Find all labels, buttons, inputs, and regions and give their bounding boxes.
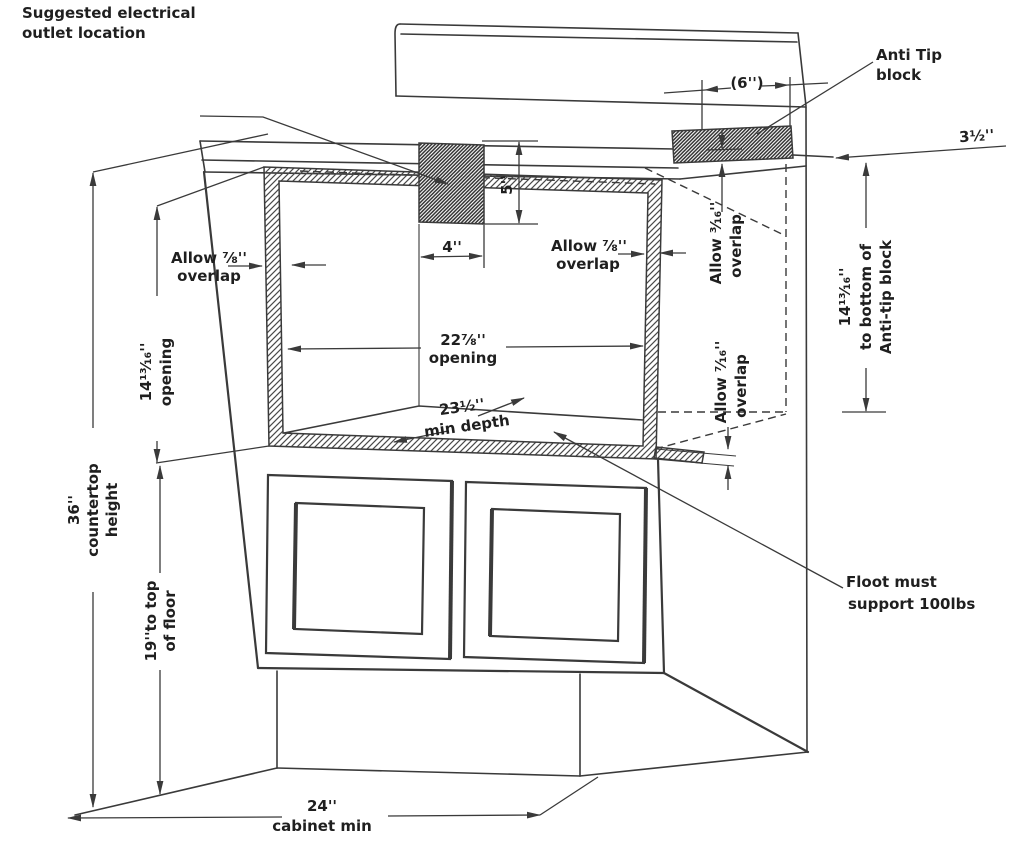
callout-floor-support: Floot must support 100lbs [554, 432, 975, 613]
label-suggested-outlet-1: Suggested electrical [22, 4, 196, 22]
label-cabinet-min-1: 24'' [307, 797, 337, 815]
dim-floor-height: 19''to top of floor [142, 466, 179, 794]
label-anti-tip-2: block [876, 66, 922, 84]
label-three-half: 3½'' [958, 126, 994, 146]
label-anti-tip-1: Anti Tip [876, 46, 942, 64]
label-allow-left-1: Allow ⅞'' [171, 249, 247, 267]
outlet-block [419, 143, 484, 224]
label-suggested-outlet-2: outlet location [22, 24, 146, 42]
label-opening-height-2: opening [157, 338, 175, 406]
countertop [200, 107, 833, 752]
label-allow-316-1: Allow ³⁄₁₆'' [707, 202, 725, 285]
label-allow-716-2: overlap [732, 354, 750, 418]
label-anti-tip-height-2: to bottom of [857, 243, 875, 350]
cabinet-doors [266, 475, 646, 663]
label-allow-716-1: Allow ⁷⁄₁₆'' [712, 341, 730, 424]
label-allow-right-1: Allow ⅞'' [551, 237, 627, 255]
label-dim-4in: 4'' [442, 238, 462, 256]
dim-anti-tip-height: 14¹³⁄₁₆'' to bottom of Anti-tip block [836, 163, 895, 412]
label-opening-height-1: 14¹³⁄₁₆'' [137, 343, 155, 402]
label-allow-right-2: overlap [556, 255, 620, 273]
anti-tip-block [672, 126, 793, 163]
label-floor-height-2: of floor [161, 590, 179, 652]
label-opening-width-word: opening [429, 349, 497, 367]
backsplash [395, 24, 806, 107]
label-allow-left-2: overlap [177, 267, 241, 285]
dim-opening-height: 14¹³⁄₁₆'' opening [137, 167, 269, 463]
callout-suggested-outlet: Suggested electrical outlet location [22, 4, 448, 184]
dim-cabinet-min: 24'' cabinet min [68, 777, 598, 835]
label-floor-height-1: 19''to top [142, 580, 160, 661]
label-floor-support-2: support 100lbs [848, 595, 975, 613]
label-allow-316-2: overlap [727, 214, 745, 278]
dim-min-depth: 23½'' min depth [394, 395, 524, 442]
label-anti-tip-height-3: Anti-tip block [877, 239, 895, 354]
installation-diagram: 5'' 4'' 22⅞'' opening Allow ⅞'' overlap … [0, 0, 1024, 849]
label-countertop-height-3: height [103, 483, 121, 538]
dim-three-half: 3½'' [836, 126, 1006, 158]
label-cabinet-min-2: cabinet min [272, 817, 372, 835]
dim-4in: 4'' [421, 225, 484, 268]
label-opening-width-value: 22⅞'' [440, 331, 486, 349]
label-six: (6'') [730, 74, 763, 92]
diagram-canvas: 5'' 4'' 22⅞'' opening Allow ⅞'' overlap … [0, 0, 1024, 849]
dim-opening-width: 22⅞'' opening [288, 331, 643, 367]
label-floor-support-1: Floot must [846, 573, 937, 591]
label-countertop-height-2: countertop [84, 463, 102, 557]
label-countertop-height-1: 36'' [65, 495, 83, 525]
label-dim-5in: 5'' [498, 175, 516, 195]
label-min-depth-2: min depth [423, 411, 511, 441]
label-anti-tip-height-1: 14¹³⁄₁₆'' [836, 268, 854, 327]
callout-anti-tip: Anti Tip block [757, 46, 942, 134]
dim-allow-716: Allow ⁷⁄₁₆'' overlap [712, 341, 750, 490]
dim-allow-left: Allow ⅞'' overlap [171, 249, 326, 285]
dim-allow-right: Allow ⅞'' overlap [551, 237, 686, 273]
